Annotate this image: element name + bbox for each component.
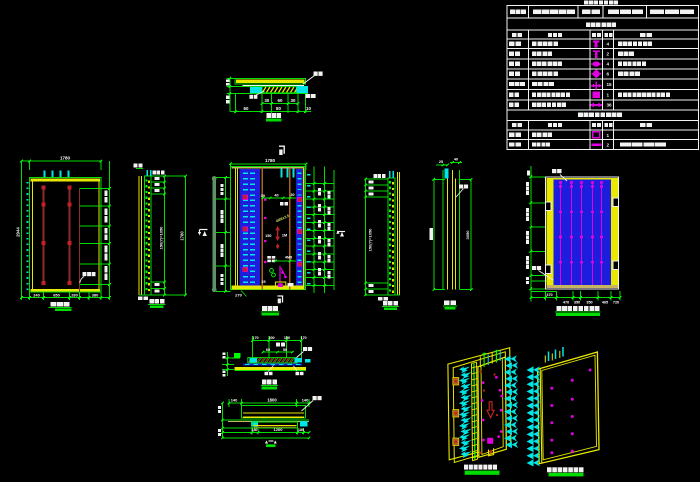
svg-text:180: 180 (298, 428, 304, 432)
svg-text:40: 40 (454, 158, 458, 162)
svg-text:30: 30 (264, 98, 269, 103)
svg-text:15: 15 (607, 82, 613, 87)
svg-text:4M8: 4M8 (285, 256, 292, 260)
svg-text:60: 60 (244, 106, 249, 111)
svg-text:1800: 1800 (267, 398, 277, 403)
svg-text:270: 270 (235, 293, 242, 298)
svg-text:1: 1 (607, 93, 610, 98)
svg-text:1780: 1780 (60, 156, 71, 161)
svg-text:50: 50 (283, 348, 287, 352)
svg-text:60: 60 (278, 98, 283, 103)
svg-text:370: 370 (546, 293, 552, 297)
svg-text:170: 170 (300, 336, 306, 340)
svg-text:36: 36 (607, 103, 613, 108)
svg-text:1780: 1780 (180, 231, 185, 241)
svg-text:1200: 1200 (274, 427, 284, 432)
svg-text:1: 1 (607, 133, 610, 138)
svg-text:3050: 3050 (465, 230, 470, 240)
svg-text:1780: 1780 (265, 158, 276, 163)
svg-text:2: 2 (607, 143, 610, 148)
svg-text:300: 300 (268, 336, 274, 340)
svg-text:140: 140 (231, 398, 238, 403)
svg-text:1M: 1M (282, 234, 287, 238)
svg-text:10: 10 (306, 106, 311, 111)
svg-text:180: 180 (251, 428, 257, 432)
svg-text:150: 150 (284, 336, 290, 340)
svg-text:465: 465 (602, 301, 608, 305)
svg-text:380: 380 (92, 292, 99, 297)
svg-text:650: 650 (53, 292, 60, 297)
svg-text:60: 60 (266, 348, 270, 352)
svg-text:720: 720 (613, 301, 619, 305)
svg-text:150(7)=1050: 150(7)=1050 (368, 228, 373, 252)
svg-text:170: 170 (252, 336, 258, 340)
svg-text:4: 4 (607, 42, 610, 47)
svg-text:350: 350 (574, 301, 580, 305)
svg-text:150: 150 (265, 234, 271, 238)
svg-text:150(7)=1050: 150(7)=1050 (159, 226, 164, 250)
svg-text:40: 40 (274, 194, 278, 198)
svg-text:280: 280 (71, 292, 78, 297)
svg-text:25: 25 (261, 280, 265, 284)
svg-text:2944: 2944 (16, 227, 21, 237)
svg-text:30: 30 (291, 98, 296, 103)
svg-text:240: 240 (33, 292, 40, 297)
svg-text:4: 4 (607, 62, 610, 67)
svg-text:470: 470 (563, 301, 569, 305)
svg-text:6: 6 (607, 72, 610, 77)
svg-text:140: 140 (302, 398, 309, 403)
svg-text:350: 350 (586, 301, 592, 305)
svg-text:80: 80 (276, 106, 281, 111)
svg-text:2: 2 (607, 52, 610, 57)
svg-text:25: 25 (439, 160, 443, 164)
